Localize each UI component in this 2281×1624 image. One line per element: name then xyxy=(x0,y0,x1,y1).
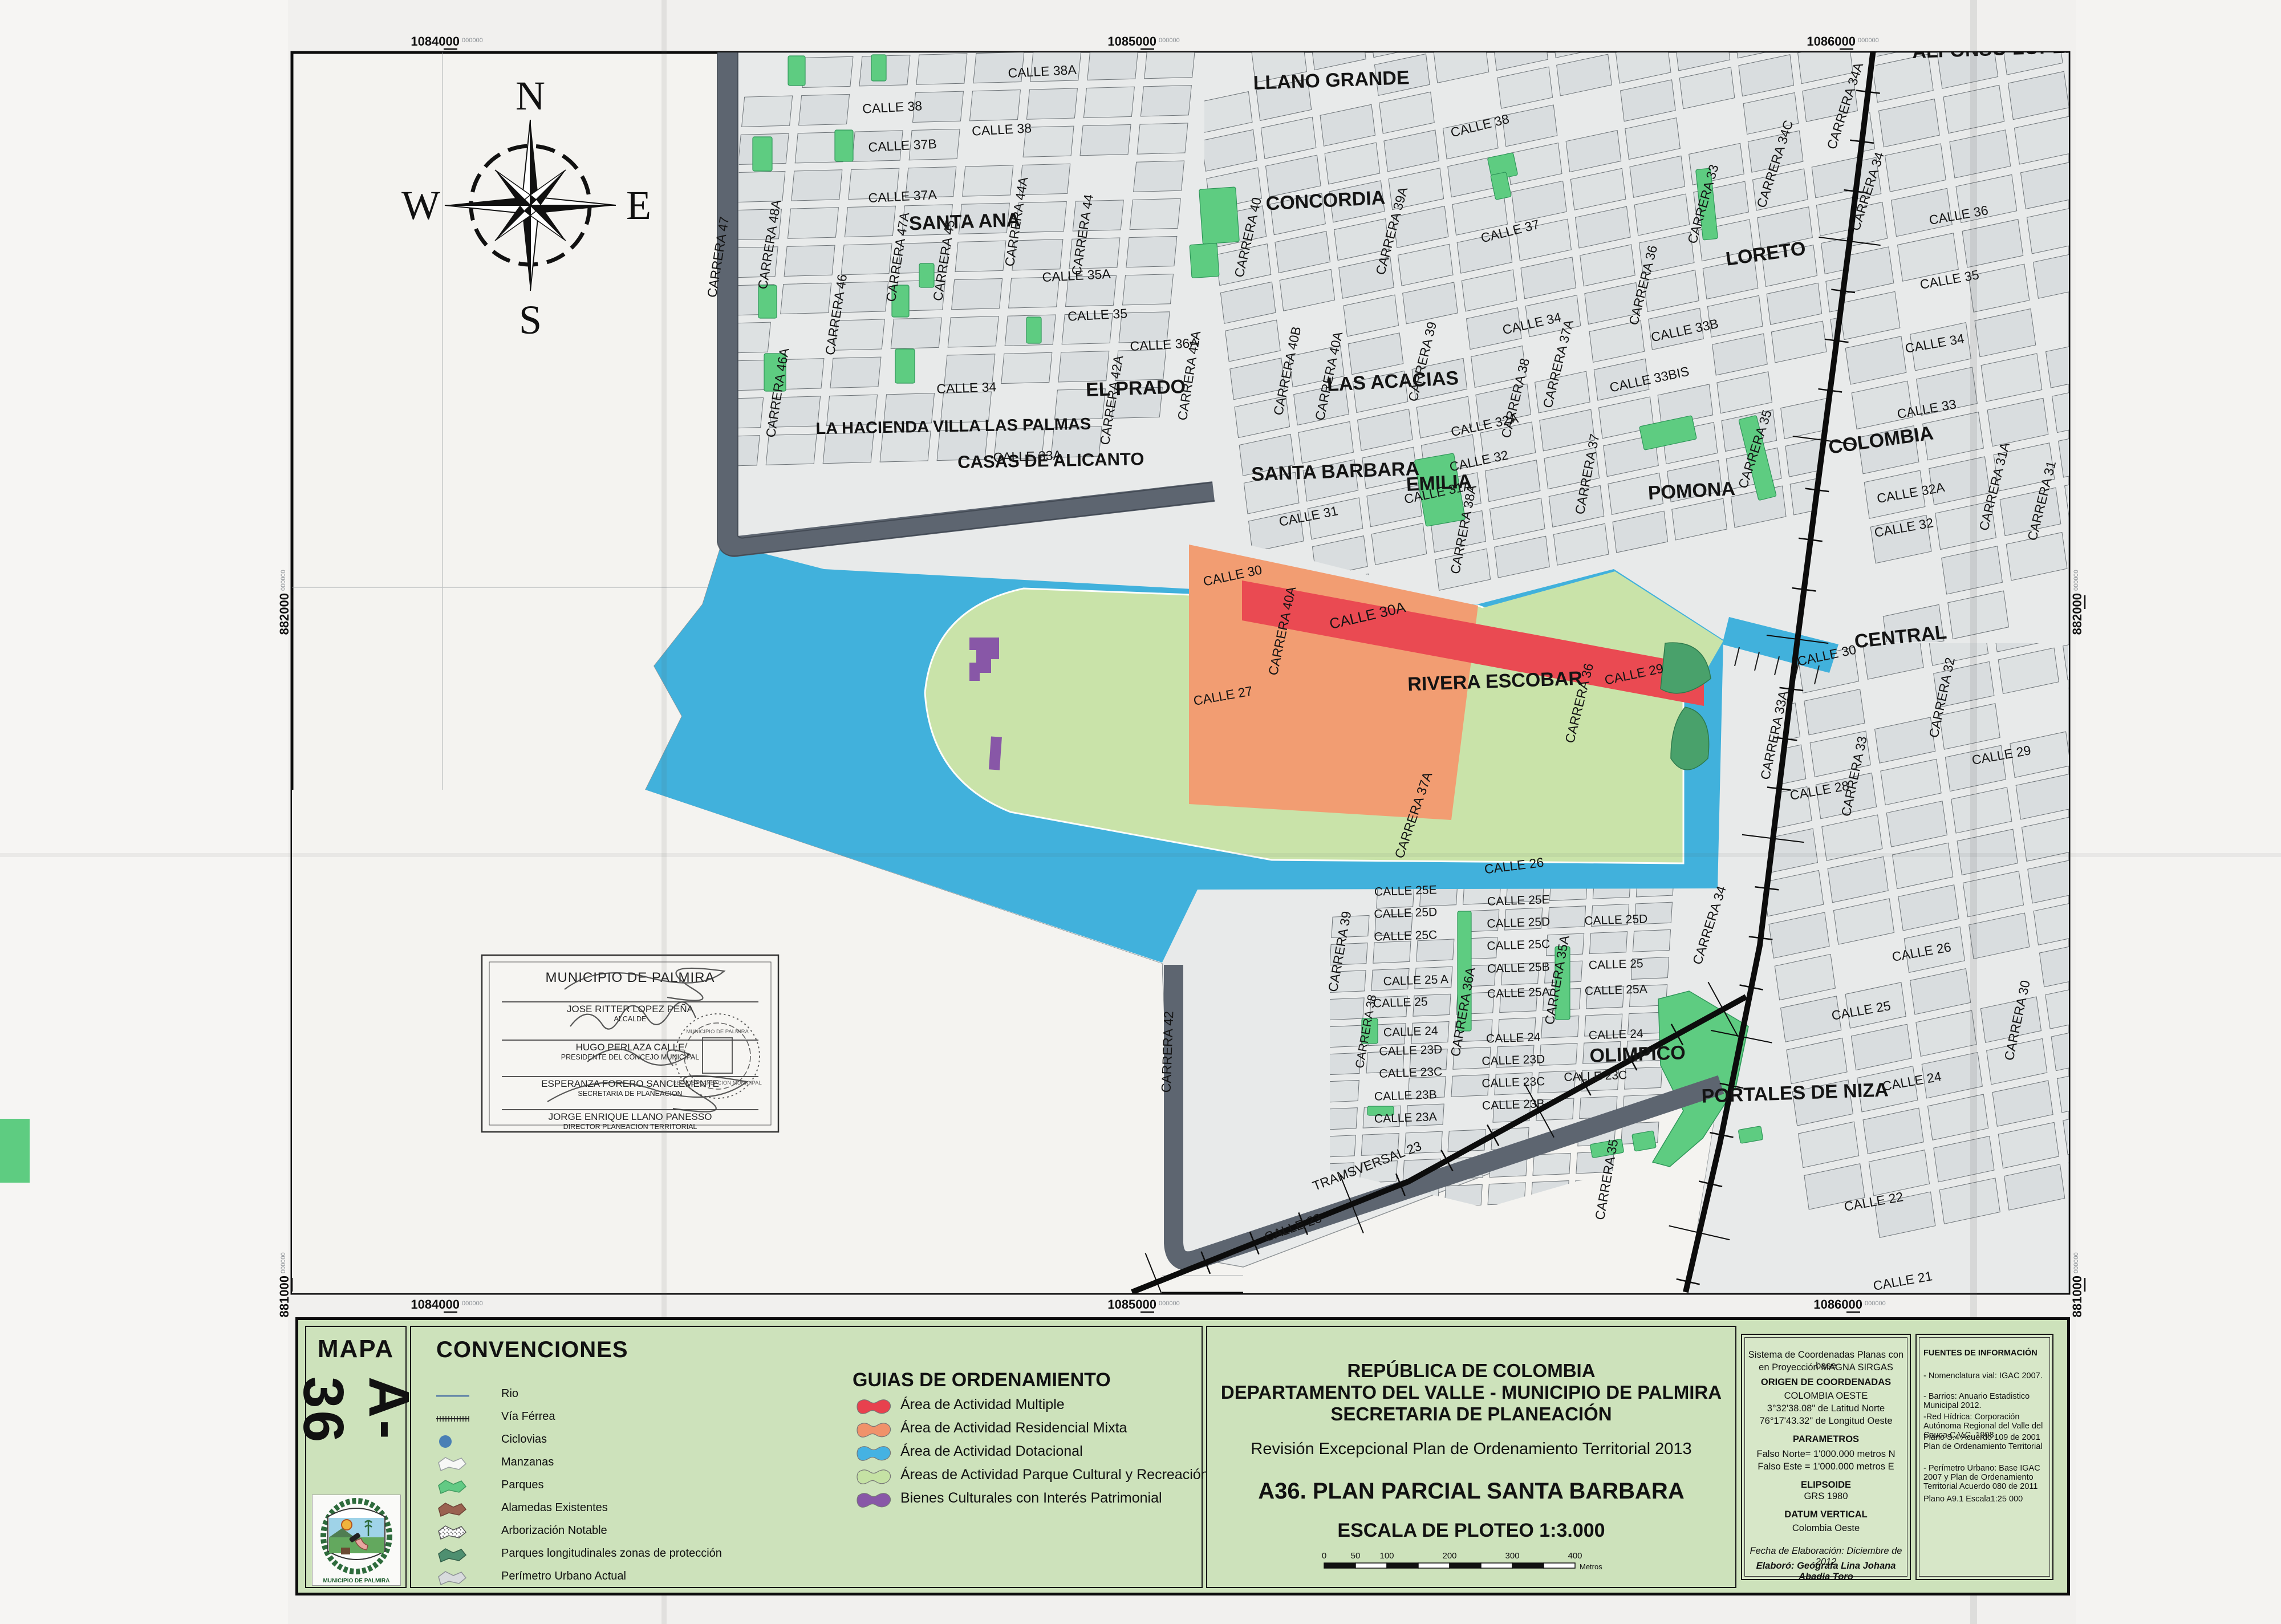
street-label: CALLE 25 A xyxy=(1383,973,1448,988)
street-label: CALLE 25A xyxy=(1487,985,1550,1001)
legend-item-label: Perímetro Urbano Actual xyxy=(501,1570,626,1583)
svg-text:1085000: 1085000 xyxy=(1107,1297,1156,1312)
legend-item-label: Manzanas xyxy=(501,1456,554,1469)
city-block xyxy=(1326,998,1364,1020)
poly-white-icon xyxy=(434,1455,491,1474)
scale-tick-label: 0 xyxy=(1322,1551,1326,1561)
svg-text:882000: 882000 xyxy=(277,593,291,635)
city-block xyxy=(1080,124,1131,155)
convenciones-panel: CONVENCIONES RioVía FérreaCicloviasManza… xyxy=(410,1326,1203,1588)
neighborhood-label: POMONA xyxy=(1647,478,1736,504)
source-item: - Perímetro Urbano: Base IGAC 2007 y Pla… xyxy=(1923,1464,2048,1491)
coord-line: Falso Norte= 1'000.000 metros N xyxy=(1742,1449,1910,1460)
railroad-icon xyxy=(434,1409,491,1428)
scale-tick-label: 100 xyxy=(1379,1551,1394,1561)
svg-text:SEC. DE PLANEACION MUNICIPAL: SEC. DE PLANEACION MUNICIPAL xyxy=(673,1080,762,1086)
legend-item-1: Rio xyxy=(434,1386,491,1409)
city-block xyxy=(1122,274,1173,305)
city-block xyxy=(792,170,842,201)
svg-text:000000: 000000 xyxy=(2073,570,2080,591)
legend-item-9: Perímetro Urbano Actual xyxy=(434,1569,491,1591)
coord-line: Falso Este = 1'000.000 metros E xyxy=(1742,1461,1910,1472)
svg-text:881000: 881000 xyxy=(277,1276,291,1317)
legend-item-6: Alamedas Existentes xyxy=(434,1500,491,1523)
source-item: - Nomenclatura vial: IGAC 2007. xyxy=(1923,1371,2048,1381)
svg-text:1086000: 1086000 xyxy=(1813,1297,1862,1312)
street-label: CALLE 38 xyxy=(862,98,923,116)
coord-line: GRS 1980 xyxy=(1742,1491,1910,1502)
zone-swatch-icon xyxy=(855,1420,896,1440)
svg-text:000000: 000000 xyxy=(462,1300,483,1307)
coord-heading: ELIPSOIDE xyxy=(1742,1480,1910,1491)
legend-item-label: Alamedas Existentes xyxy=(501,1501,608,1515)
svg-text:MUNICIPIO DE PALMIRA: MUNICIPIO DE PALMIRA xyxy=(686,1029,749,1035)
city-block xyxy=(952,278,1002,309)
title-panel: REPÚBLICA DE COLOMBIA DEPARTAMENTO DEL V… xyxy=(1206,1326,1736,1588)
street-label: CALLE 23B xyxy=(1482,1097,1545,1113)
city-block xyxy=(1130,198,1180,229)
street-label: CALLE 23C xyxy=(1379,1065,1443,1081)
street-label: CALLE 25 xyxy=(1373,995,1428,1010)
street-label: CALLE 25E xyxy=(1487,893,1550,908)
circle-icon xyxy=(434,1432,491,1451)
park xyxy=(753,137,772,171)
legend-item-label: Parques longitudinales zonas de protecci… xyxy=(501,1547,722,1560)
compass-s: S xyxy=(519,297,542,343)
city-block xyxy=(916,54,967,84)
svg-text:000000: 000000 xyxy=(1858,37,1879,44)
city-block xyxy=(841,244,892,275)
svg-text:1085000: 1085000 xyxy=(1107,34,1156,48)
svg-text:1086000: 1086000 xyxy=(1807,34,1856,48)
svg-text:882000: 882000 xyxy=(2070,593,2084,635)
guias-item-1: Área de Actividad Multiple xyxy=(855,1396,896,1421)
scale-bar: 050100200300400Metros xyxy=(1313,1545,1632,1579)
guias-item-2: Área de Actividad Residencial Mixta xyxy=(855,1420,896,1444)
guias-item-label: Bienes Culturales con Interés Patrimonia… xyxy=(900,1490,1162,1507)
street-label: CALLE 25A xyxy=(1585,982,1647,998)
coord-heading: PARAMETROS xyxy=(1742,1434,1910,1445)
legend-item-label: Arborización Notable xyxy=(501,1524,607,1537)
scale-tick-label: 400 xyxy=(1568,1551,1582,1561)
source-item: - Barrios: Anuario Estadistico Municipal… xyxy=(1923,1392,2048,1410)
city-block xyxy=(1058,351,1109,382)
compass-n: N xyxy=(516,73,545,119)
signatory-name: JORGE ENRIQUE LLANO PANESSO xyxy=(549,1111,712,1122)
source-item: Plano S.4 Acuerdo 109 de 2001 Plan de Or… xyxy=(1923,1433,2048,1451)
street-label: CALLE 23A xyxy=(1374,1110,1437,1126)
poly-brown-icon xyxy=(434,1500,491,1520)
compass-e: E xyxy=(626,182,651,228)
legend-item-7: Arborización Notable xyxy=(434,1523,491,1546)
river-icon xyxy=(434,1386,491,1406)
scale-tick-label: 300 xyxy=(1505,1551,1519,1561)
city-block xyxy=(1417,939,1454,961)
city-block xyxy=(799,94,850,125)
city-block xyxy=(802,56,853,87)
city-block xyxy=(891,318,941,348)
legend-strip: MAPA A-36 MUNICIPIO DE PALMIRA CONVENCIO… xyxy=(295,1317,2070,1595)
street-label: CALLE 24 xyxy=(1589,1027,1644,1042)
city-block xyxy=(1373,941,1411,963)
city-block xyxy=(1540,1044,1577,1066)
legend-item-2: Vía Férrea xyxy=(434,1409,491,1432)
coord-line: en Proyección MAGNA SIRGAS xyxy=(1742,1362,1910,1373)
city-block xyxy=(955,241,1006,271)
map-code: A-36 xyxy=(290,1377,421,1476)
mapa-word: MAPA xyxy=(306,1335,405,1363)
street-label: CALLE 38 xyxy=(972,120,1032,138)
park xyxy=(871,55,886,81)
svg-text:000000: 000000 xyxy=(462,37,483,44)
guias-item-label: Área de Actividad Multiple xyxy=(900,1396,1065,1413)
legend-item-label: Rio xyxy=(501,1387,518,1400)
street-label: CALLE 24 xyxy=(1383,1024,1439,1039)
city-block xyxy=(969,90,1020,121)
revision-subtitle: Revisión Excepcional Plan de Ordenamient… xyxy=(1207,1440,1735,1459)
city-block xyxy=(1533,1153,1570,1175)
svg-text:1084000: 1084000 xyxy=(411,34,460,48)
neighborhood-label: OLIMPICO xyxy=(1589,1042,1686,1067)
secretary-title: SECRETARIA DE PLANEACIÓN xyxy=(1207,1403,1735,1425)
coord-line: COLOMBIA OESTE xyxy=(1742,1391,1910,1402)
street-label: CALLE 23B xyxy=(1374,1088,1437,1103)
poly-dots-icon xyxy=(434,1523,491,1542)
department-title: DEPARTAMENTO DEL VALLE - MUNICIPIO DE PA… xyxy=(1207,1382,1735,1403)
legend-item-label: Ciclovias xyxy=(501,1433,547,1446)
city-block xyxy=(788,208,838,238)
zone-swatch-icon xyxy=(855,1396,896,1417)
poly-gray-icon xyxy=(434,1569,491,1588)
park xyxy=(788,56,805,86)
street-label: CALLE 23C xyxy=(1564,1069,1627,1084)
sources-title: FUENTES DE INFORMACIÓN xyxy=(1923,1349,2048,1358)
street-label: CALLE 34 xyxy=(936,379,997,396)
crest-caption: MUNICIPIO DE PALMIRA xyxy=(312,1578,400,1584)
legend-item-3: Ciclovias xyxy=(434,1432,491,1455)
edge-tab xyxy=(0,1119,30,1183)
city-block xyxy=(948,316,999,347)
city-block xyxy=(1633,929,1670,952)
map-title: A36. PLAN PARCIAL SANTA BARBARA xyxy=(1207,1479,1735,1504)
city-block xyxy=(1625,1067,1662,1089)
zone-swatch-icon xyxy=(855,1443,896,1464)
zone-patrimonial xyxy=(989,736,1002,770)
author: Elaboró: Geógrafa Lina Johana Abadia Tor… xyxy=(1742,1561,1910,1582)
guias-item-5: Bienes Culturales con Interés Patrimonia… xyxy=(855,1490,896,1515)
convenciones-title: CONVENCIONES xyxy=(436,1337,1202,1363)
municipal-crest: MUNICIPIO DE PALMIRA xyxy=(312,1495,401,1586)
compass-w: W xyxy=(401,182,440,228)
source-item: Plano A9.1 Escala1:25 000 xyxy=(1923,1495,2048,1504)
city-block xyxy=(766,434,817,465)
park xyxy=(1632,1131,1657,1151)
park xyxy=(919,263,934,287)
street-label: CALLE 25C xyxy=(1374,928,1438,944)
city-block xyxy=(1126,236,1177,267)
neighborhood-label: CASAS DE ALICANTO xyxy=(957,449,1144,472)
legend-item-label: Vía Férrea xyxy=(501,1410,555,1423)
map-code-panel: MAPA A-36 MUNICIPIO DE PALMIRA xyxy=(305,1326,407,1588)
scale-unit: Metros xyxy=(1580,1562,1602,1571)
street-label: CALLE 25E xyxy=(1374,883,1437,899)
guias-item-3: Área de Actividad Dotacional xyxy=(855,1443,896,1468)
park xyxy=(835,130,853,161)
coordinates-panel: Sistema de Coordenadas Planas con base e… xyxy=(1741,1334,1911,1580)
svg-text:000000: 000000 xyxy=(280,570,287,591)
legend-item-4: Manzanas xyxy=(434,1455,491,1477)
signatory-role: PRESIDENTE DEL CONCEJO MUNICIPAL xyxy=(561,1053,699,1061)
street-label: CALLE 24 xyxy=(1486,1030,1541,1045)
city-block xyxy=(845,206,895,237)
guias-item-4: Áreas de Actividad Parque Cultural y Rec… xyxy=(855,1467,896,1491)
city-block xyxy=(830,357,881,388)
poly-darkgreen-icon xyxy=(434,1546,491,1565)
city-block xyxy=(1026,88,1077,119)
poly-green-icon xyxy=(434,1477,491,1497)
svg-text:000000: 000000 xyxy=(1159,1300,1180,1307)
coord-heading: ORIGEN DE COORDENADAS xyxy=(1742,1377,1910,1388)
legend-item-label: Parques xyxy=(501,1479,544,1492)
city-block xyxy=(1140,86,1191,116)
sources-panel: FUENTES DE INFORMACIÓN - Nomenclatura vi… xyxy=(1915,1334,2053,1580)
street-label: CALLE 23C xyxy=(1482,1075,1545,1090)
plot-scale: ESCALA DE PLOTEO 1:3.000 xyxy=(1207,1520,1735,1542)
coord-line: Colombia Oeste xyxy=(1742,1523,1910,1534)
country-title: REPÚBLICA DE COLOMBIA xyxy=(1207,1360,1735,1382)
city-block xyxy=(1589,932,1627,954)
signatory-role: DIRECTOR PLANEACION TERRITORIAL xyxy=(563,1123,697,1131)
guias-item-label: Áreas de Actividad Parque Cultural y Rec… xyxy=(900,1467,1209,1483)
scale-tick-label: 200 xyxy=(1442,1551,1456,1561)
svg-text:000000: 000000 xyxy=(2073,1252,2080,1273)
city-block xyxy=(784,245,835,276)
city-block xyxy=(1134,161,1184,192)
legend-item-5: Parques xyxy=(434,1477,491,1500)
signature-block: MUNICIPIO DE PALMIRA JOSE RITTER LOPEZ P… xyxy=(482,955,778,1132)
street-label: CALLE 25 xyxy=(1589,957,1643,972)
park xyxy=(1026,317,1041,343)
park xyxy=(1199,187,1240,244)
street-label: CALLE 23D xyxy=(1379,1043,1443,1058)
city-block xyxy=(1137,123,1188,154)
city-block xyxy=(781,283,831,314)
guias-title: GUIAS DE ORDENAMIENTO xyxy=(853,1369,1111,1391)
map-sheet: CALLE 38ACALLE 38CALLE 38CALLE 37BCALLE … xyxy=(0,0,2281,1624)
street-label: CALLE 25D xyxy=(1374,906,1438,921)
svg-text:000000: 000000 xyxy=(1865,1300,1886,1307)
city-block xyxy=(734,171,785,202)
city-block xyxy=(1083,87,1134,117)
svg-text:881000: 881000 xyxy=(2070,1276,2084,1317)
guias-item-label: Área de Actividad Dotacional xyxy=(900,1443,1083,1460)
svg-text:000000: 000000 xyxy=(280,1252,287,1273)
svg-text:1084000: 1084000 xyxy=(411,1297,460,1312)
street-label: CARRERA 42 xyxy=(1159,1011,1176,1093)
city-block xyxy=(1001,352,1052,383)
coord-line: 76°17'43.32" de Longitud Oeste xyxy=(1742,1416,1910,1427)
street-label: CALLE 25B xyxy=(1487,960,1550,976)
park xyxy=(895,349,915,383)
city-block xyxy=(963,165,1013,196)
park xyxy=(1190,243,1219,278)
zone-swatch-icon xyxy=(855,1467,896,1487)
city-block xyxy=(1087,49,1138,80)
street-label: CALLE 25D xyxy=(1584,912,1648,928)
scale-tick-label: 50 xyxy=(1351,1551,1361,1561)
street-label: CALLE 35 xyxy=(1068,306,1128,323)
coord-line: 3°32'38.08" de Latitud Norte xyxy=(1742,1403,1910,1414)
neighborhood-label: EL PRADO xyxy=(1085,376,1186,401)
neighborhood-label: SANTA ANA xyxy=(908,209,1020,235)
street-label: CALLE 25D xyxy=(1487,915,1551,931)
svg-text:000000: 000000 xyxy=(1159,37,1180,44)
street-label: CALLE 23D xyxy=(1482,1053,1545,1068)
street-label: CALLE 25C xyxy=(1487,937,1551,953)
zone-swatch-icon xyxy=(855,1490,896,1511)
legend-item-8: Parques longitudinales zonas de protecci… xyxy=(434,1546,491,1569)
city-block xyxy=(1548,906,1585,928)
city-block xyxy=(742,96,793,127)
coord-heading: DATUM VERTICAL xyxy=(1742,1509,1910,1520)
guias-item-label: Área de Actividad Residencial Mixta xyxy=(900,1420,1127,1436)
